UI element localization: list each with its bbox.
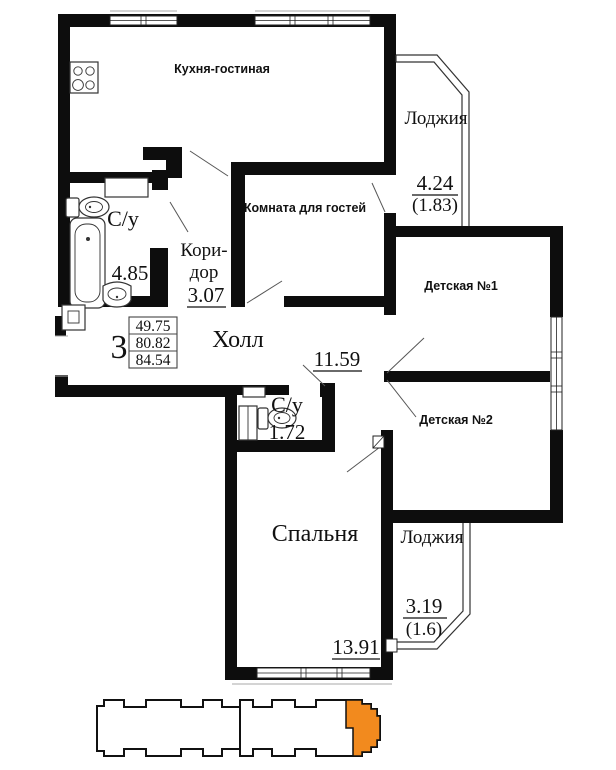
wall-segment (384, 371, 550, 382)
room-count: 3 (111, 329, 128, 366)
room-label-kitchen: Кухня-гостиная (174, 62, 270, 76)
wall-segment (152, 170, 168, 190)
footprint-outline (97, 700, 380, 756)
area-hall: 11.59 (314, 347, 360, 371)
door-swing-line (190, 151, 228, 176)
wall-segment (231, 162, 245, 307)
room-label-loggia-top: Лоджия (404, 108, 467, 129)
wall-segment (55, 385, 237, 397)
fixtures (62, 62, 296, 440)
room-label-bedroom: Спальня (272, 521, 359, 547)
summary-area-no-loggia: 80.82 (136, 335, 171, 352)
summary-total-area: 84.54 (136, 352, 171, 369)
wall-segment (225, 385, 237, 680)
door-swing-line (170, 202, 188, 232)
floor-plan-page: Кухня-гостиная Комната для гостей Детска… (0, 0, 616, 770)
washing-machine-icon (62, 305, 85, 330)
walls (55, 14, 563, 680)
wall-segment (58, 14, 70, 307)
floor-plan-drawing: Кухня-гостиная Комната для гостей Детска… (0, 0, 616, 770)
wall-segment (231, 296, 245, 307)
apartment-summary: 3 49.75 80.82 84.54 (111, 317, 178, 369)
area-coeff-loggia-bottom: (1.6) (406, 619, 442, 640)
loggia-glazing (386, 55, 470, 652)
wall-segment (550, 226, 563, 317)
door-swing-line (247, 281, 282, 303)
wall-segment (384, 25, 396, 175)
room-label-bathroom-small: С/у (271, 392, 303, 417)
area-corridor: 3.07 (188, 283, 225, 307)
toilet-icon (66, 197, 109, 217)
room-label-child1: Детская №1 (424, 279, 498, 293)
room-label-bathroom-main: С/у (107, 206, 139, 231)
bathtub-icon (70, 218, 105, 308)
area-loggia-top: 4.24 (417, 171, 454, 195)
stove-icon (70, 62, 98, 93)
door-swing-line (372, 183, 385, 212)
area-bedroom: 13.91 (332, 635, 379, 659)
room-label-corridor-2: дор (190, 262, 219, 283)
sink-icon (103, 282, 131, 307)
cabinet-icon (239, 406, 257, 440)
building-footprint (97, 700, 380, 756)
wall-segment (384, 228, 396, 315)
wall-segment (232, 162, 396, 175)
wall-segment (384, 510, 562, 523)
summary-living-area: 49.75 (136, 318, 171, 335)
door-swing-line (387, 380, 416, 417)
area-bathroom-main: 4.85 (112, 261, 149, 285)
area-loggia-bottom: 3.19 (406, 594, 443, 618)
area-bathroom-small: 1.72 (269, 420, 306, 444)
area-coeff-loggia-top: (1.83) (412, 195, 458, 216)
wall-segment (284, 296, 396, 307)
room-label-hall: Холл (212, 327, 263, 353)
shelf-icon (243, 387, 265, 397)
wall-segment (166, 147, 182, 178)
room-label-corridor-1: Кори- (180, 240, 227, 261)
cabinet-icon (105, 178, 148, 197)
room-label-loggia-bottom: Лоджия (400, 527, 463, 548)
room-label-child2: Детская №2 (419, 413, 493, 427)
wall-segment (384, 226, 562, 237)
wall-segment (550, 430, 563, 523)
room-label-guest: Комната для гостей (244, 201, 366, 215)
door-swing-line (387, 338, 424, 373)
loggia-frame (386, 639, 397, 652)
door-swing-line (347, 447, 380, 472)
